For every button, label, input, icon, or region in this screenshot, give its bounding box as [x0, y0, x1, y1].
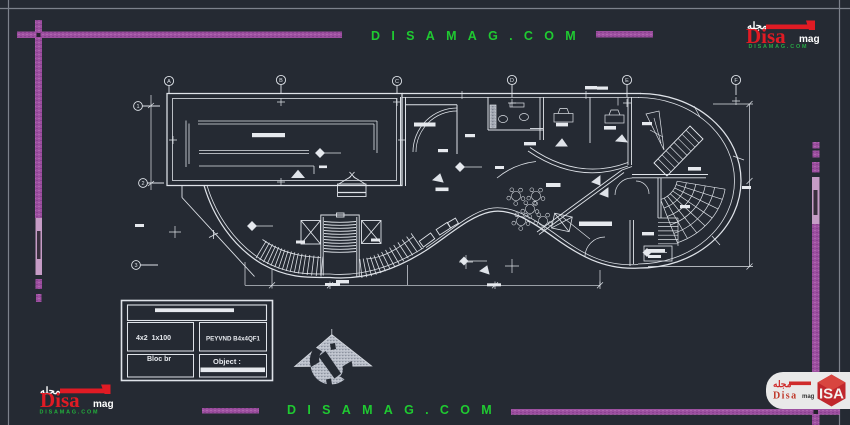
svg-text:Disa: Disa	[40, 388, 80, 412]
svg-text:Disa: Disa	[773, 391, 798, 402]
svg-text:C: C	[395, 79, 399, 85]
svg-text:E: E	[625, 78, 629, 84]
svg-text:DISAMAG.COM: DISAMAG.COM	[371, 29, 587, 43]
svg-text:مجله: مجله	[773, 379, 792, 389]
svg-text:Object :: Object :	[213, 357, 241, 366]
svg-text:3: 3	[134, 263, 137, 269]
svg-text:ISA: ISA	[819, 386, 844, 403]
svg-text:mag: mag	[93, 399, 114, 410]
svg-text:DISAMAG.COM: DISAMAG.COM	[749, 44, 809, 50]
svg-text:D: D	[510, 78, 514, 84]
svg-text:F: F	[734, 78, 738, 84]
svg-text:Bloc br: Bloc br	[147, 356, 171, 363]
svg-text:4x2 1x100: 4x2 1x100	[136, 335, 171, 342]
svg-text:PEYVND B4x4QF1: PEYVND B4x4QF1	[206, 336, 261, 343]
svg-text:DISAMAG.COM: DISAMAG.COM	[40, 410, 100, 416]
svg-text:1: 1	[136, 104, 139, 110]
svg-text:2: 2	[141, 181, 144, 187]
svg-text:A: A	[167, 79, 171, 85]
svg-text:B: B	[279, 78, 283, 84]
svg-text:DISAMAG.COM: DISAMAG.COM	[287, 403, 503, 417]
svg-text:mag: mag	[802, 394, 815, 400]
